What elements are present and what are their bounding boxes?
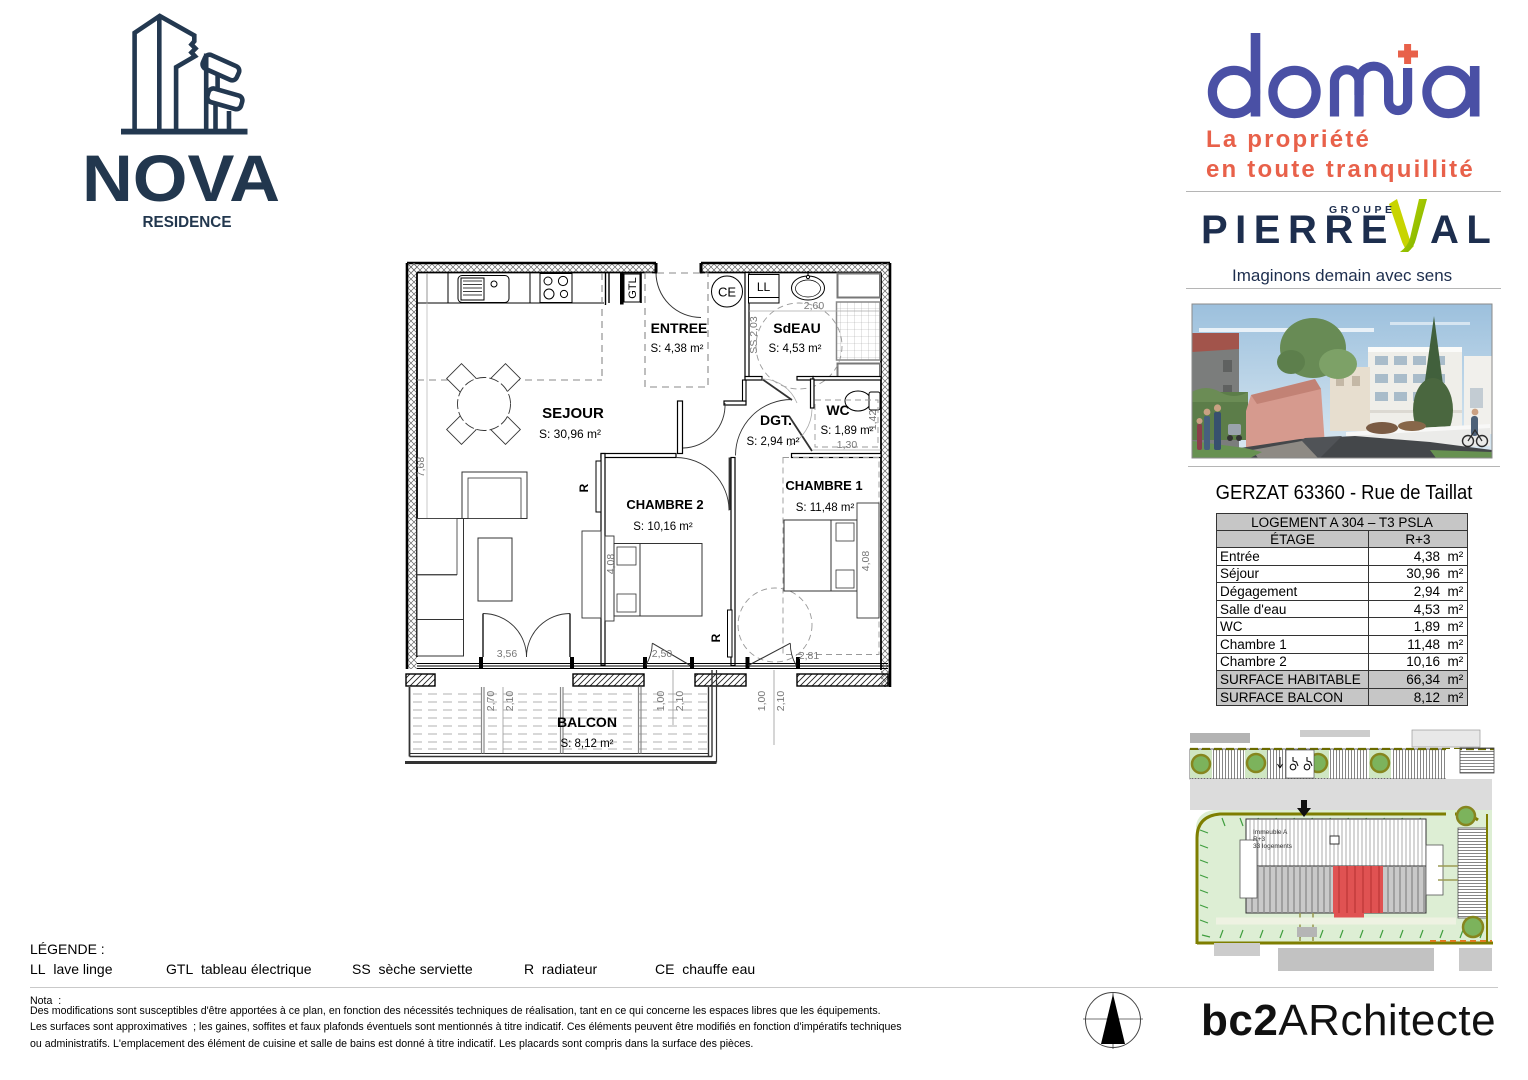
svg-text:S: 10,16 m²: S: 10,16 m² [633, 521, 693, 533]
svg-text:WC: WC [826, 402, 849, 418]
svg-text:2,10: 2,10 [775, 691, 787, 712]
svg-text:S: 8,12 m²: S: 8,12 m² [560, 738, 613, 750]
svg-text:SS 2,03: SS 2,03 [748, 316, 760, 354]
svg-text:CE: CE [718, 285, 736, 300]
svg-text:2,81: 2,81 [799, 650, 820, 662]
svg-text:S: 11,48 m²: S: 11,48 m² [796, 502, 855, 514]
svg-text:SEJOUR: SEJOUR [542, 405, 604, 422]
svg-text:CHAMBRE 2: CHAMBRE 2 [626, 497, 703, 512]
svg-text:BALCON: BALCON [557, 714, 617, 730]
svg-text:2,10: 2,10 [504, 691, 516, 712]
svg-text:DGT.: DGT. [760, 412, 792, 428]
svg-text:NOVA: NOVA [82, 141, 280, 215]
svg-text:S: 2,94 m²: S: 2,94 m² [746, 436, 799, 448]
svg-text:2,50: 2,50 [652, 648, 673, 660]
svg-text:Immeuble A: Immeuble A [1253, 829, 1288, 836]
svg-text:2,10: 2,10 [674, 691, 686, 712]
svg-text:1,00: 1,00 [756, 691, 768, 712]
svg-text:R: R [577, 483, 591, 492]
svg-text:3,56: 3,56 [497, 648, 518, 660]
svg-text:33 logements: 33 logements [1253, 843, 1293, 850]
svg-text:SdEAU: SdEAU [773, 320, 820, 336]
svg-text:CHAMBRE 1: CHAMBRE 1 [785, 478, 862, 493]
svg-text:R: R [709, 633, 723, 642]
svg-text:R+3: R+3 [1253, 836, 1265, 843]
svg-text:4,08: 4,08 [860, 551, 872, 572]
svg-text:1,42: 1,42 [867, 410, 879, 431]
svg-text:S: 1,89 m²: S: 1,89 m² [820, 425, 873, 437]
svg-text:ENTREE: ENTREE [651, 320, 708, 336]
svg-text:2,70: 2,70 [485, 691, 497, 712]
svg-text:S: 4,53 m²: S: 4,53 m² [768, 343, 821, 355]
svg-text:2,60: 2,60 [804, 300, 825, 312]
svg-text:S: 4,38 m²: S: 4,38 m² [650, 343, 703, 355]
svg-text:1,00: 1,00 [655, 691, 667, 712]
svg-text:1,30: 1,30 [837, 439, 858, 451]
svg-text:7,68: 7,68 [415, 457, 427, 478]
svg-text:GTL: GTL [627, 277, 639, 298]
svg-text:S: 30,96 m²: S: 30,96 m² [539, 427, 601, 441]
svg-text:4,08: 4,08 [605, 554, 617, 575]
svg-text:RESIDENCE: RESIDENCE [143, 214, 232, 231]
svg-text:LL: LL [757, 280, 771, 294]
